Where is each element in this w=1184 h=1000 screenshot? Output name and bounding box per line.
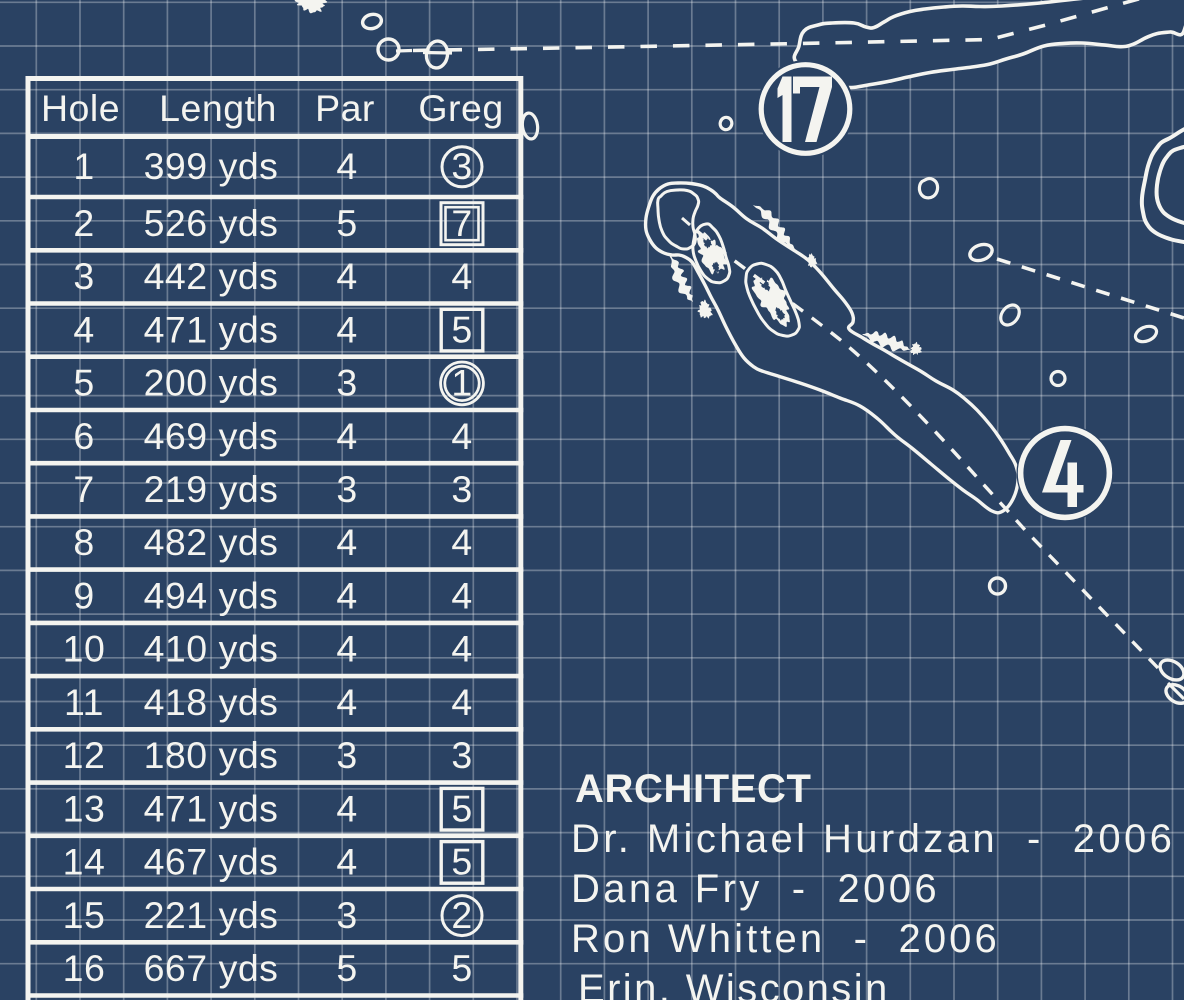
svg-text:482 yds: 482 yds [144,521,279,563]
svg-text:3: 3 [336,734,357,776]
svg-text:Dr. Michael Hurdzan - 2006: Dr. Michael Hurdzan - 2006 [571,817,1175,861]
svg-text:5: 5 [336,947,357,989]
svg-text:467 yds: 467 yds [144,841,279,883]
svg-text:3: 3 [336,894,357,936]
svg-text:3: 3 [336,362,357,404]
svg-text:9: 9 [73,575,94,617]
svg-text:12: 12 [63,734,106,776]
svg-text:4: 4 [451,575,472,617]
svg-text:1: 1 [73,145,94,187]
svg-text:219 yds: 219 yds [144,468,279,510]
svg-text:418 yds: 418 yds [144,681,279,723]
svg-text:13: 13 [63,787,106,829]
svg-text:4: 4 [451,681,472,723]
svg-text:5: 5 [451,947,472,989]
svg-text:Erin, Wisconsin: Erin, Wisconsin [578,967,890,1000]
svg-text:Par: Par [315,87,375,129]
svg-text:494 yds: 494 yds [144,575,279,617]
svg-text:2: 2 [451,894,472,936]
svg-text:4: 4 [336,787,357,829]
svg-text:14: 14 [63,841,106,883]
svg-text:667 yds: 667 yds [144,947,279,989]
svg-text:Greg: Greg [418,87,503,129]
svg-text:4: 4 [336,521,357,563]
svg-text:410 yds: 410 yds [144,628,279,670]
svg-text:5: 5 [451,308,472,350]
svg-text:4: 4 [451,628,472,670]
svg-text:3: 3 [451,145,472,187]
svg-text:8: 8 [73,521,94,563]
svg-text:471 yds: 471 yds [144,308,279,350]
svg-text:2: 2 [73,202,94,244]
svg-text:16: 16 [63,947,106,989]
svg-text:4: 4 [336,145,357,187]
svg-text:4: 4 [336,681,357,723]
svg-text:5: 5 [451,787,472,829]
svg-text:ARCHITECT: ARCHITECT [575,767,812,811]
svg-text:10: 10 [63,628,106,670]
svg-text:180 yds: 180 yds [144,734,279,776]
svg-text:4: 4 [336,308,357,350]
svg-text:4: 4 [336,841,357,883]
svg-text:4: 4 [336,628,357,670]
svg-text:3: 3 [73,255,94,297]
svg-text:4: 4 [451,521,472,563]
svg-text:3: 3 [451,468,472,510]
svg-text:4: 4 [73,308,94,350]
svg-text:Hole: Hole [41,87,120,129]
svg-text:526 yds: 526 yds [144,202,279,244]
svg-text:15: 15 [63,894,106,936]
svg-text:469 yds: 469 yds [144,415,279,457]
svg-text:442 yds: 442 yds [144,255,279,297]
svg-text:471 yds: 471 yds [144,787,279,829]
svg-text:221 yds: 221 yds [144,894,279,936]
svg-text:4: 4 [336,575,357,617]
svg-text:Length: Length [159,87,277,129]
svg-text:11: 11 [64,681,104,723]
svg-text:3: 3 [451,734,472,776]
svg-text:5: 5 [336,202,357,244]
svg-text:Dana Fry - 2006: Dana Fry - 2006 [571,867,940,911]
svg-text:4: 4 [451,255,472,297]
svg-text:6: 6 [73,415,94,457]
svg-text:3: 3 [336,468,357,510]
svg-text:Ron Whitten - 2006: Ron Whitten - 2006 [571,917,1000,961]
svg-text:7: 7 [73,468,94,510]
svg-text:5: 5 [73,362,94,404]
svg-text:5: 5 [451,841,472,883]
svg-text:4: 4 [451,415,472,457]
svg-text:4: 4 [336,255,357,297]
svg-text:4: 4 [336,415,357,457]
svg-text:399 yds: 399 yds [144,145,279,187]
svg-text:200 yds: 200 yds [144,362,279,404]
